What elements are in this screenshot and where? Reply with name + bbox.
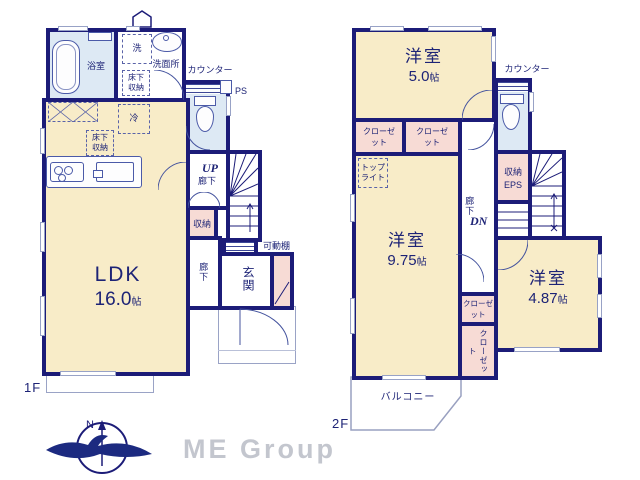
room-487-door-arc [498, 240, 528, 270]
toilet-counter-hatch-2f [498, 82, 528, 92]
window [350, 194, 355, 222]
closet-2-2f: クローゼット [402, 118, 462, 156]
window [40, 222, 45, 252]
closet-4-label: クローゼット [467, 326, 489, 376]
window [350, 298, 355, 334]
hallway-2f-label: 廊下 [463, 196, 474, 216]
storage-1f-label: 収納 [193, 217, 211, 230]
room-975-size-unit: 帖 [417, 257, 427, 268]
up-label: UP [202, 161, 218, 176]
room-5-size-value: 5.0 [409, 68, 430, 85]
stairs-2f-lower [494, 200, 532, 240]
window [226, 96, 231, 116]
counter-label-2f: カウンター [504, 64, 549, 75]
closet-2-label: クローゼット [415, 126, 449, 148]
window [58, 26, 88, 31]
room-5-name: 洋室 5.0帖 [405, 46, 443, 87]
window [382, 375, 426, 380]
stairs-1f [226, 150, 262, 242]
ldk-name-text: LDK [95, 262, 142, 288]
ps-label: PS [235, 86, 247, 97]
room-5-size-unit: 帖 [429, 73, 439, 84]
bird-silhouette [46, 435, 152, 458]
window [126, 26, 140, 31]
window [40, 296, 45, 336]
room-975-name-text: 洋室 [387, 230, 426, 251]
underfloor-storage-washroom: 床下収納 [122, 70, 150, 96]
room-487-name-text: 洋室 [528, 268, 567, 289]
burner-icon [64, 166, 73, 175]
ldk-name: LDK 16.0帖 [95, 262, 142, 312]
closet-3-2f: クローゼット [458, 292, 498, 326]
ldk-size-value: 16.0 [95, 289, 132, 310]
hallway-1f-label: 廊下 [197, 262, 208, 282]
floor-2f-label: 2F [332, 416, 349, 431]
room-975-size-value: 9.75 [387, 252, 416, 269]
bathtub-inner [56, 44, 76, 90]
room-975-name: 洋室 9.75帖 [387, 230, 426, 271]
ldk-size: 16.0帖 [95, 288, 142, 312]
room-975-size: 9.75帖 [387, 251, 426, 271]
window [597, 254, 602, 278]
room-5-name-text: 洋室 [405, 46, 443, 67]
bathroom-label: 浴室 [87, 61, 105, 72]
room-487-size-unit: 帖 [558, 295, 568, 306]
deck-step [46, 375, 154, 393]
window [597, 294, 602, 318]
faucet-icon [93, 170, 103, 178]
window [40, 128, 45, 154]
floor-1f-label: 1F [24, 380, 41, 395]
stairs-2f [528, 150, 566, 240]
window [370, 26, 404, 31]
room-487-name: 洋室 4.87帖 [528, 268, 567, 309]
shelf-hatch [226, 242, 254, 252]
porch-step-line [218, 350, 296, 351]
stove-icon [50, 162, 84, 182]
hall-double-door-right-arc [204, 192, 220, 208]
bath-counter-icon [88, 32, 112, 41]
room-487-size: 4.87帖 [528, 289, 567, 309]
room-5-door-arc [462, 90, 492, 120]
stairs-treads-icon [532, 154, 562, 236]
sink-faucet-icon [163, 35, 169, 41]
storage-2f-label: 収納 [504, 165, 522, 178]
closet-4-2f: クローゼット [458, 322, 498, 380]
window [428, 26, 482, 31]
logo-text: ME Group [183, 434, 336, 465]
burner-icon [58, 174, 66, 182]
toilet-tank-1f-icon [194, 96, 216, 106]
stairs-treads-icon [230, 154, 258, 238]
underfloor-storage-washroom-label: 床下収納 [126, 73, 146, 93]
ldk-door-arc [158, 162, 186, 190]
room-ldk-1f [42, 98, 190, 376]
storage-2f: 収納 EPS [494, 150, 532, 204]
washer-box: 洗 [122, 34, 152, 64]
bathtub-icon [52, 40, 80, 94]
room-487-size-value: 4.87 [528, 290, 557, 307]
entrance-door-arc [238, 308, 290, 346]
room-5-size: 5.0帖 [405, 67, 443, 87]
hallway-up-label: 廊下 [198, 176, 216, 187]
dn-label: DN [470, 214, 487, 229]
storage-1f: 収納 [186, 206, 218, 240]
window [60, 371, 116, 376]
fridge-box: 冷 [118, 104, 150, 134]
entrance-closet-1f [270, 252, 294, 310]
fridge-label: 冷 [129, 113, 138, 124]
washer-label: 洗 [132, 43, 141, 54]
stairs-treads-icon [498, 204, 528, 236]
movable-shelf-label: 可動棚 [263, 241, 290, 252]
floorplan: 収納 洗 床下収納 冷 床下収納 [0, 0, 640, 480]
ps-shaft-1f [220, 80, 232, 94]
closet-1-2f: クローゼット [352, 118, 406, 156]
shoe-cabinet-diagonal [274, 256, 290, 306]
room-975-door-arc [456, 254, 484, 282]
window [514, 347, 560, 352]
toilet-2f-door-arc [468, 124, 494, 150]
ldk-size-unit: 帖 [131, 297, 141, 308]
entrance-label: 玄関 [240, 266, 255, 292]
compass-n-label: N [86, 419, 94, 431]
washroom-door-arc [154, 70, 184, 100]
hall-double-door-left-arc [188, 192, 204, 208]
eps-label: EPS [504, 180, 522, 190]
underfloor-storage-kitchen: 床下収納 [86, 130, 114, 156]
closet-1-label: クローゼット [362, 126, 396, 148]
toplight-box: トップライト [358, 158, 388, 188]
counter-label-1f: カウンター [187, 65, 232, 76]
toilet-tank-2f-icon [500, 94, 524, 104]
compass-icon: N [38, 414, 158, 476]
balcony-label: バルコニー [381, 392, 436, 405]
underfloor-storage-kitchen-label: 床下収納 [90, 133, 110, 153]
window [491, 36, 496, 62]
kitchen-floor-hatch-icon [48, 102, 98, 122]
washroom-label: 洗面所 [152, 59, 179, 70]
toilet-1f-door-arc [186, 126, 210, 150]
toplight-label: トップライト [360, 163, 386, 183]
kitchen-sink-icon [96, 162, 134, 182]
closet-3-label: クローゼット [463, 298, 493, 320]
window [529, 92, 534, 112]
